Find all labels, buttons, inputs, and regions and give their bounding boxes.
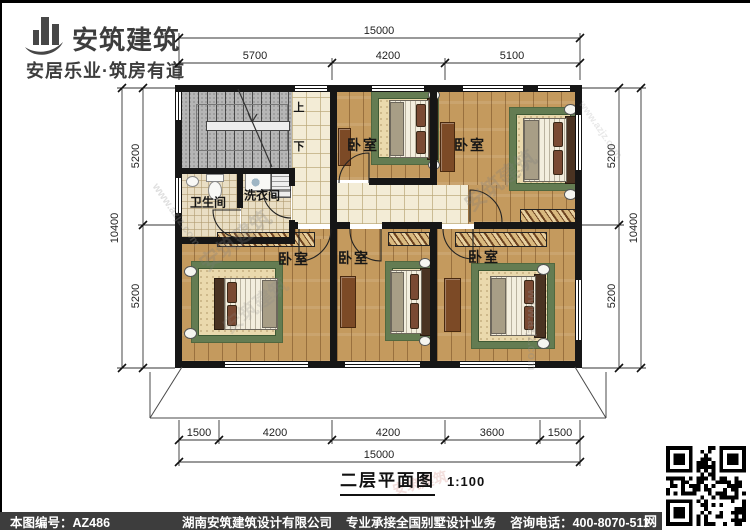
desk	[444, 278, 461, 332]
pillow	[416, 104, 426, 127]
nightstand	[537, 264, 550, 275]
qr-code	[662, 442, 750, 530]
room-label-bedroom: 卧室	[454, 135, 486, 155]
sheet-border-top	[0, 0, 750, 3]
blanket	[390, 102, 404, 156]
dresser	[440, 122, 455, 172]
dim-left-overall: 10400	[109, 213, 121, 244]
room-label-laundry: 洗衣间	[244, 187, 280, 204]
dim-top-seg: 4200	[376, 50, 400, 62]
nightstand	[184, 328, 197, 339]
logo-name: 安筑建筑	[72, 20, 180, 57]
dim-top-overall: 15000	[364, 25, 395, 37]
dim-top-seg: 5100	[500, 50, 524, 62]
room-label-bedroom: 卧室	[468, 247, 500, 267]
blanket	[524, 120, 539, 180]
dim-bottom-seg: 4200	[376, 427, 400, 439]
dim-bottom-seg: 3600	[480, 427, 504, 439]
sheet-border-left	[0, 0, 2, 530]
company-logo	[22, 14, 68, 63]
floor-plan-sheet: 安筑建筑 安居乐业·筑房有道	[0, 0, 750, 530]
dim-left-seg: 5200	[130, 284, 142, 308]
qr-label: 网	[644, 511, 657, 530]
pillow	[553, 150, 563, 175]
wardrobe	[388, 232, 430, 246]
pillow	[416, 131, 426, 154]
stair-up-label: 上	[294, 99, 305, 115]
pillow	[227, 282, 237, 303]
desk	[340, 276, 356, 328]
dim-right-seg: 5200	[606, 144, 618, 168]
room-label-bedroom: 卧室	[338, 248, 370, 268]
pillow	[524, 306, 534, 330]
blanket	[262, 280, 277, 328]
blanket	[391, 272, 404, 332]
dim-bottom-seg: 4200	[263, 427, 287, 439]
stair-handrail	[206, 121, 290, 131]
hallway-floor-horizontal	[292, 183, 468, 224]
dim-left-seg: 5200	[130, 144, 142, 168]
drawing-title: 二层平面图	[340, 466, 435, 496]
footer-phone: 咨询电话：400-8070-511	[510, 512, 650, 530]
footer-company: 湖南安筑建筑设计有限公司	[182, 512, 332, 530]
room-label-bedroom: 卧室	[347, 135, 379, 155]
nightstand	[184, 266, 197, 277]
dim-bottom-overall: 15000	[364, 449, 395, 461]
blanket	[491, 278, 506, 334]
footer-service: 专业承接全国别墅设计业务	[346, 512, 496, 530]
pillow	[227, 305, 237, 326]
room-label-bathroom: 卫生间	[190, 194, 226, 211]
nightstand	[537, 338, 550, 349]
logo-tagline: 安居乐业·筑房有道	[26, 57, 185, 83]
room-label-bedroom: 卧室	[278, 249, 310, 269]
pillow	[410, 274, 419, 300]
pillow	[524, 280, 534, 304]
dim-bottom-seg: 1500	[548, 427, 572, 439]
drawing-number: 本图编号：AZ486	[10, 512, 110, 530]
building-logo-icon	[22, 14, 68, 58]
pillow	[553, 122, 563, 147]
stair-down-label: 下	[294, 138, 305, 154]
wardrobe	[455, 232, 547, 247]
drawing-title-row: 二层平面图 1:100	[340, 466, 485, 496]
pillow	[410, 303, 419, 329]
drawing-scale: 1:100	[447, 474, 485, 489]
dim-bottom-seg: 1500	[187, 427, 211, 439]
sink	[186, 176, 199, 187]
dim-top-seg: 5700	[243, 50, 267, 62]
dim-right-seg: 5200	[606, 284, 618, 308]
dim-right-overall: 10400	[628, 213, 640, 244]
footer-bar: 本图编号：AZ486 湖南安筑建筑设计有限公司 专业承接全国别墅设计业务 咨询电…	[0, 512, 750, 530]
